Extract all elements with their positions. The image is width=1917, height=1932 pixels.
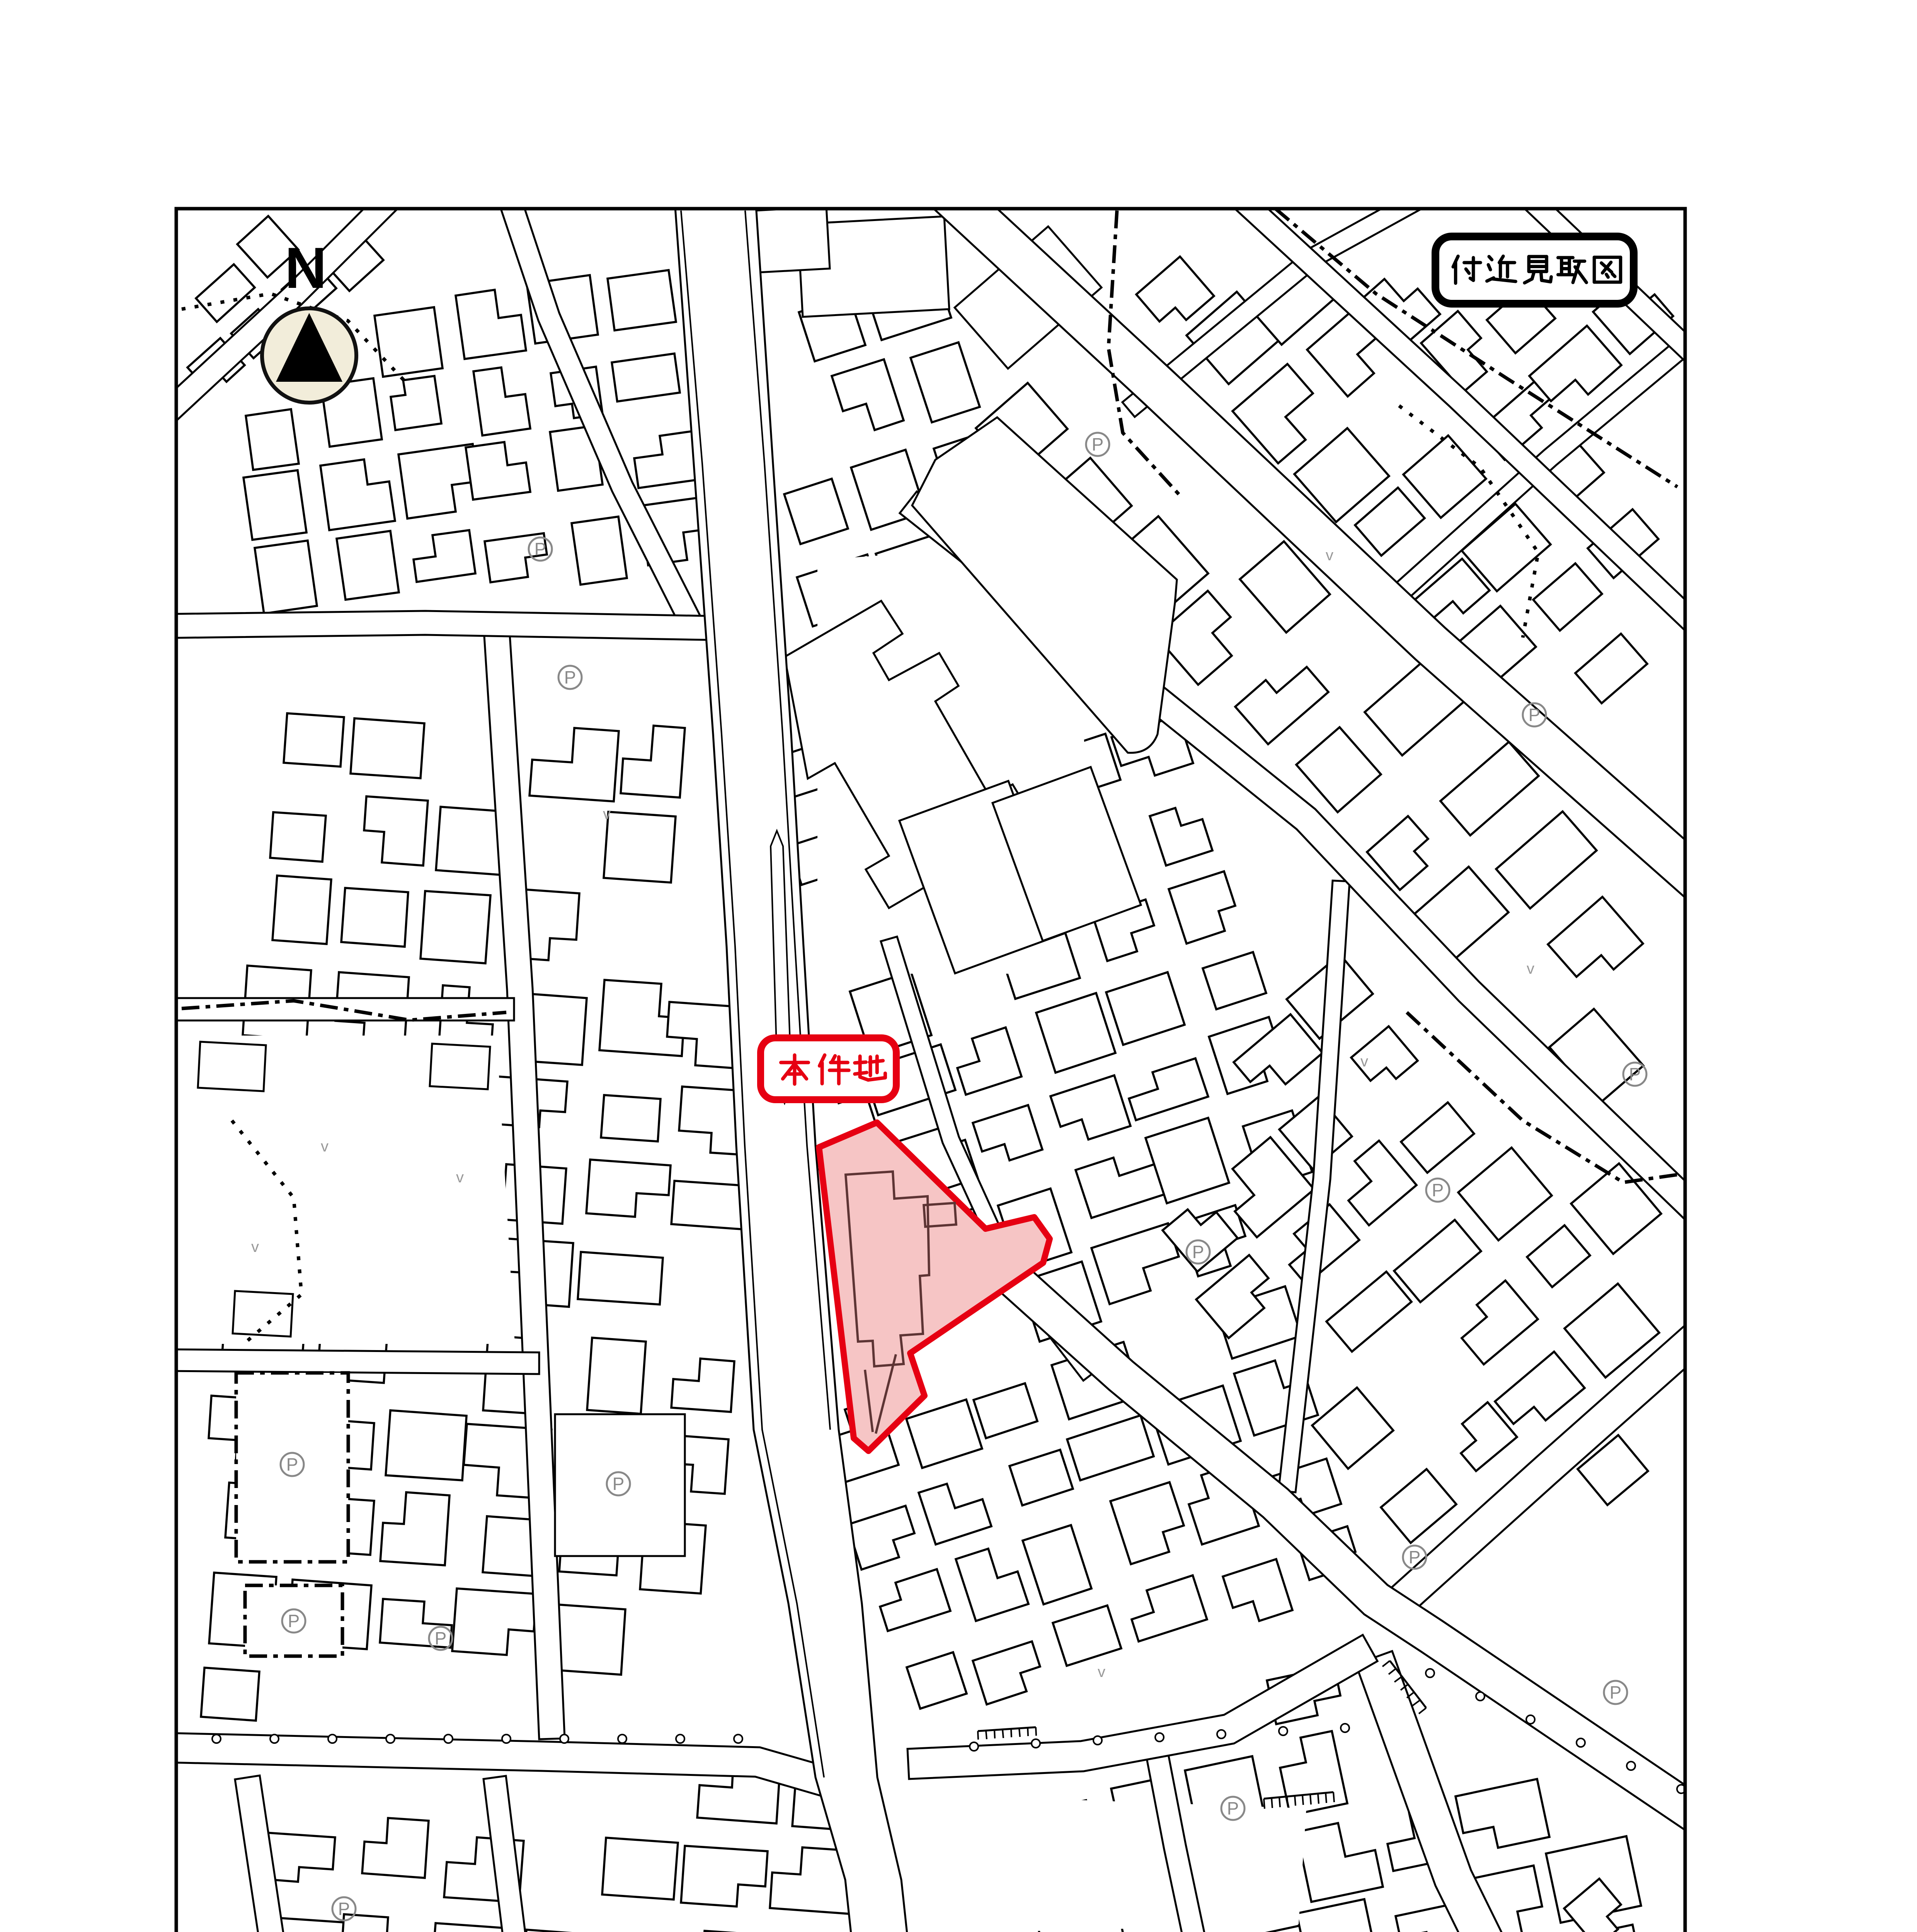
svg-text:P: P <box>286 1454 298 1475</box>
svg-text:v: v <box>251 1238 259 1255</box>
svg-text:v: v <box>1527 960 1534 977</box>
svg-text:P: P <box>1432 1180 1444 1200</box>
svg-text:N: N <box>285 235 327 300</box>
svg-text:v: v <box>603 806 611 823</box>
svg-text:P: P <box>1409 1547 1421 1567</box>
svg-text:P: P <box>1629 1064 1641 1084</box>
svg-text:P: P <box>1610 1682 1622 1702</box>
svg-text:P: P <box>1192 1242 1204 1262</box>
svg-text:v: v <box>456 1169 464 1186</box>
svg-text:v: v <box>1326 547 1333 564</box>
svg-text:v: v <box>1360 1053 1368 1070</box>
svg-text:P: P <box>535 539 546 559</box>
svg-text:v: v <box>1098 1663 1105 1680</box>
svg-text:P: P <box>338 1899 350 1919</box>
svg-text:P: P <box>1227 1798 1239 1818</box>
svg-text:P: P <box>1529 705 1541 725</box>
svg-text:P: P <box>1092 434 1104 454</box>
svg-text:P: P <box>435 1628 447 1648</box>
svg-text:P: P <box>564 667 576 687</box>
svg-text:P: P <box>613 1474 625 1494</box>
svg-text:P: P <box>288 1611 300 1631</box>
svg-text:v: v <box>321 1138 329 1155</box>
